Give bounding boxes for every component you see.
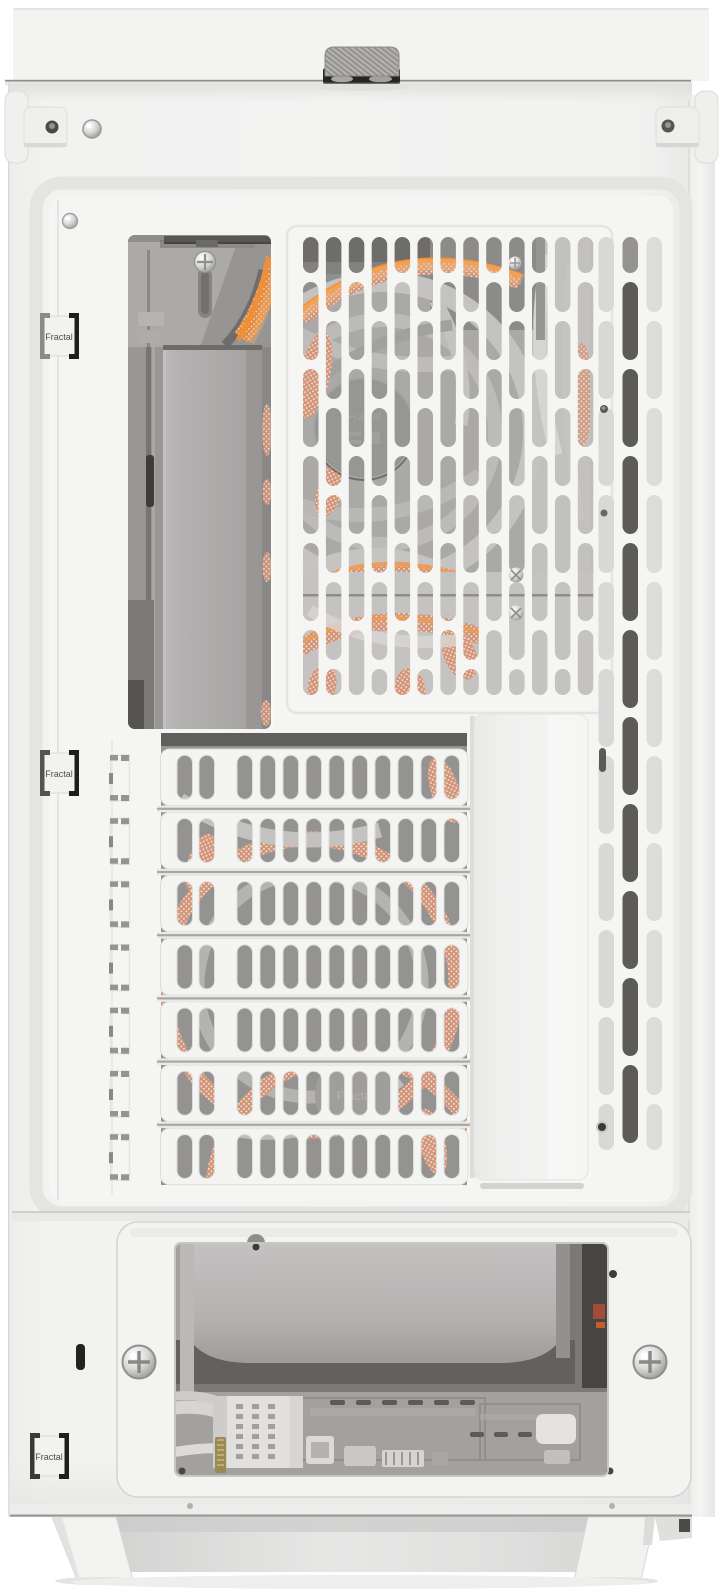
svg-text:Fractal: Fractal — [45, 769, 73, 779]
svg-text:Fractal: Fractal — [35, 1452, 63, 1462]
svg-text:Fractal: Fractal — [347, 411, 381, 423]
svg-text:Fractal: Fractal — [45, 332, 73, 342]
